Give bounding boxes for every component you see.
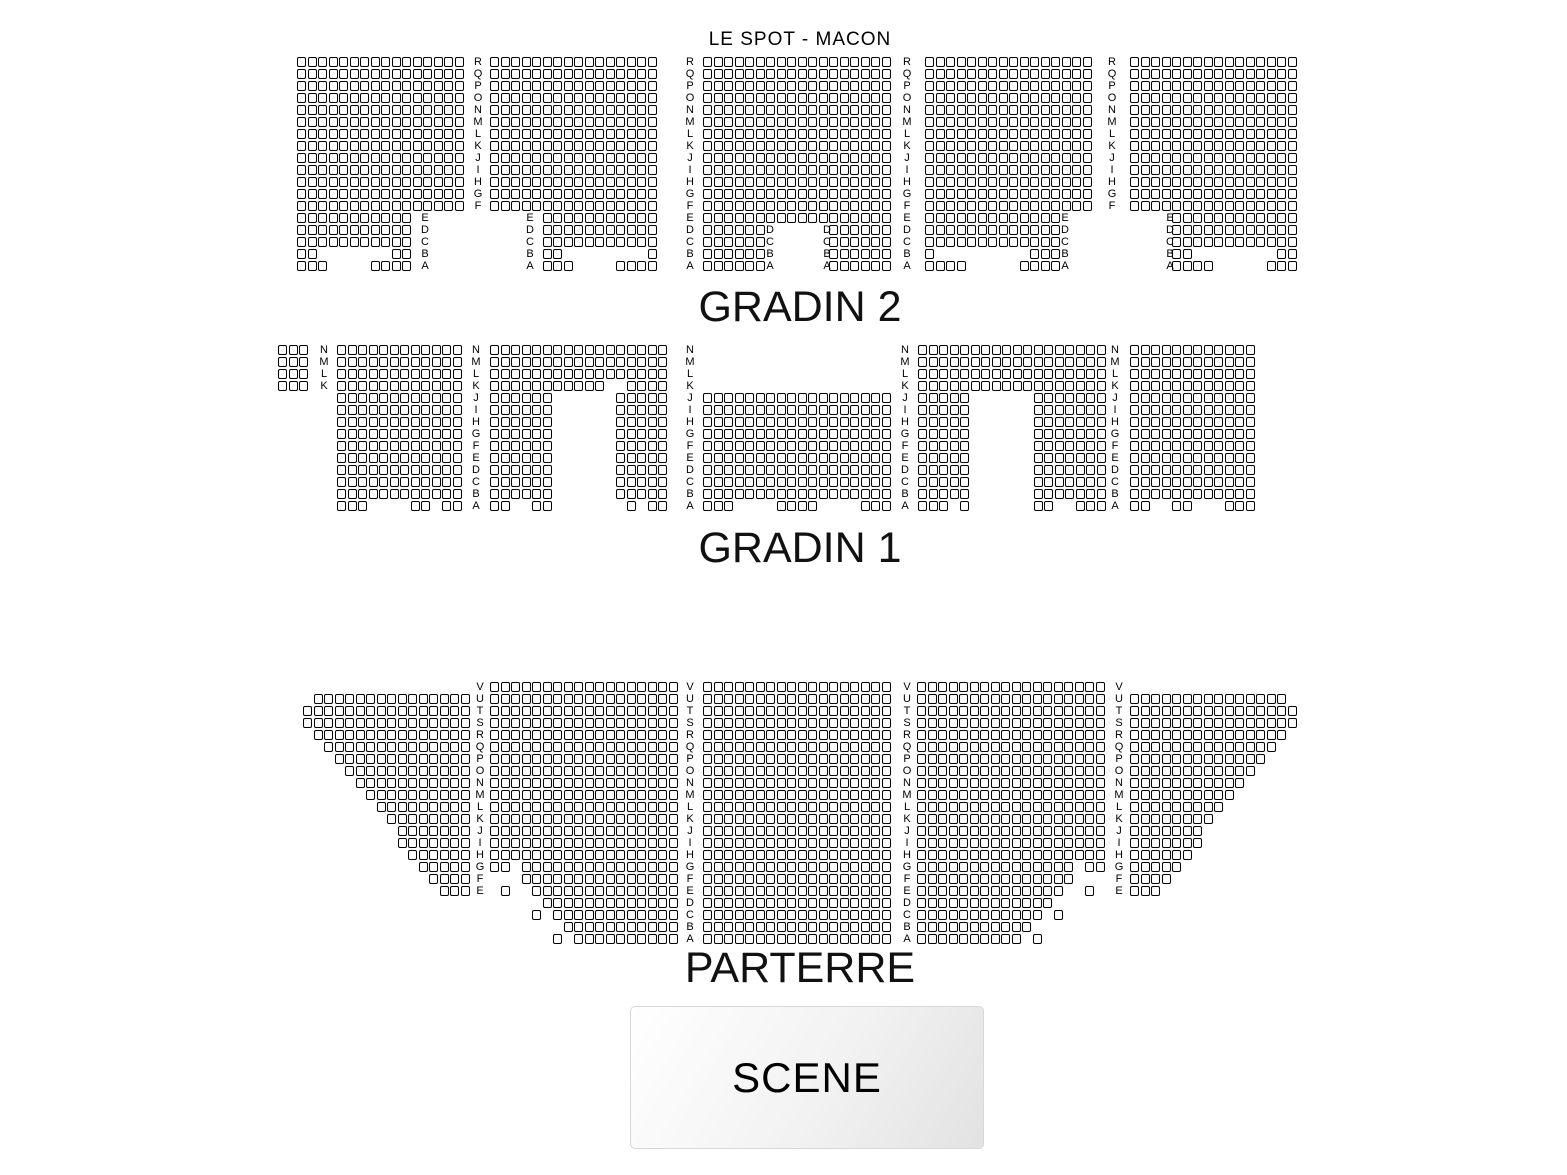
seat[interactable] bbox=[648, 405, 657, 415]
seat[interactable] bbox=[703, 261, 712, 271]
seat[interactable] bbox=[1183, 153, 1192, 163]
seat[interactable] bbox=[616, 69, 625, 79]
seat[interactable] bbox=[918, 465, 927, 475]
seat[interactable] bbox=[358, 441, 367, 451]
seat[interactable] bbox=[808, 93, 817, 103]
seat[interactable] bbox=[960, 381, 969, 391]
seat[interactable] bbox=[350, 93, 359, 103]
seat[interactable] bbox=[381, 129, 390, 139]
seat[interactable] bbox=[390, 489, 399, 499]
seat[interactable] bbox=[991, 766, 1000, 776]
seat[interactable] bbox=[648, 153, 657, 163]
seat[interactable] bbox=[1130, 69, 1139, 79]
seat[interactable] bbox=[991, 778, 1000, 788]
seat[interactable] bbox=[1267, 69, 1276, 79]
seat[interactable] bbox=[585, 790, 594, 800]
seat[interactable] bbox=[392, 237, 401, 247]
seat[interactable] bbox=[337, 381, 346, 391]
seat[interactable] bbox=[1277, 201, 1286, 211]
seat[interactable] bbox=[337, 369, 346, 379]
seat[interactable] bbox=[461, 790, 470, 800]
seat[interactable] bbox=[1214, 369, 1223, 379]
seat[interactable] bbox=[627, 694, 636, 704]
seat[interactable] bbox=[829, 910, 838, 920]
seat[interactable] bbox=[574, 141, 583, 151]
seat[interactable] bbox=[553, 814, 562, 824]
seat[interactable] bbox=[1002, 345, 1011, 355]
seat[interactable] bbox=[703, 742, 712, 752]
seat[interactable] bbox=[1235, 105, 1244, 115]
seat[interactable] bbox=[564, 754, 573, 764]
seat[interactable] bbox=[1096, 718, 1105, 728]
seat[interactable] bbox=[1072, 201, 1081, 211]
seat[interactable] bbox=[553, 117, 562, 127]
seat[interactable] bbox=[936, 93, 945, 103]
seat[interactable] bbox=[808, 105, 817, 115]
seat[interactable] bbox=[442, 393, 451, 403]
seat[interactable] bbox=[308, 177, 317, 187]
seat[interactable] bbox=[648, 730, 657, 740]
seat[interactable] bbox=[724, 69, 733, 79]
seat[interactable] bbox=[490, 201, 499, 211]
seat[interactable] bbox=[543, 117, 552, 127]
seat[interactable] bbox=[703, 874, 712, 884]
seat[interactable] bbox=[840, 117, 849, 127]
seat[interactable] bbox=[745, 69, 754, 79]
seat[interactable] bbox=[735, 105, 744, 115]
seat[interactable] bbox=[434, 201, 443, 211]
seat[interactable] bbox=[1172, 706, 1181, 716]
seat[interactable] bbox=[408, 838, 417, 848]
seat[interactable] bbox=[411, 501, 420, 511]
seat[interactable] bbox=[850, 850, 859, 860]
seat[interactable] bbox=[595, 129, 604, 139]
seat[interactable] bbox=[703, 850, 712, 860]
seat[interactable] bbox=[918, 441, 927, 451]
seat[interactable] bbox=[318, 69, 327, 79]
seat[interactable] bbox=[627, 814, 636, 824]
seat[interactable] bbox=[735, 453, 744, 463]
seat[interactable] bbox=[429, 766, 438, 776]
seat[interactable] bbox=[356, 742, 365, 752]
seat[interactable] bbox=[1041, 189, 1050, 199]
seat[interactable] bbox=[553, 81, 562, 91]
seat[interactable] bbox=[490, 742, 499, 752]
seat[interactable] bbox=[658, 405, 667, 415]
seat[interactable] bbox=[1009, 57, 1018, 67]
seat[interactable] bbox=[829, 405, 838, 415]
seat[interactable] bbox=[967, 237, 976, 247]
seat[interactable] bbox=[308, 201, 317, 211]
seat[interactable] bbox=[543, 261, 552, 271]
seat[interactable] bbox=[627, 213, 636, 223]
seat[interactable] bbox=[959, 934, 968, 944]
seat[interactable] bbox=[1183, 754, 1192, 764]
seat[interactable] bbox=[808, 898, 817, 908]
seat[interactable] bbox=[714, 826, 723, 836]
seat[interactable] bbox=[829, 778, 838, 788]
seat[interactable] bbox=[724, 201, 733, 211]
seat[interactable] bbox=[553, 177, 562, 187]
seat[interactable] bbox=[408, 790, 417, 800]
seat[interactable] bbox=[637, 778, 646, 788]
seat[interactable] bbox=[959, 850, 968, 860]
seat[interactable] bbox=[798, 754, 807, 764]
seat[interactable] bbox=[1030, 177, 1039, 187]
seat[interactable] bbox=[1001, 802, 1010, 812]
seat[interactable] bbox=[766, 730, 775, 740]
seat[interactable] bbox=[1246, 465, 1255, 475]
seat[interactable] bbox=[882, 189, 891, 199]
seat[interactable] bbox=[627, 93, 636, 103]
seat[interactable] bbox=[1225, 381, 1234, 391]
seat[interactable] bbox=[377, 766, 386, 776]
seat[interactable] bbox=[714, 189, 723, 199]
seat[interactable] bbox=[1162, 81, 1171, 91]
seat[interactable] bbox=[1022, 766, 1031, 776]
seat[interactable] bbox=[348, 501, 357, 511]
seat[interactable] bbox=[882, 81, 891, 91]
seat[interactable] bbox=[1151, 345, 1160, 355]
seat[interactable] bbox=[756, 898, 765, 908]
seat[interactable] bbox=[735, 838, 744, 848]
seat[interactable] bbox=[440, 814, 449, 824]
seat[interactable] bbox=[411, 357, 420, 367]
seat[interactable] bbox=[936, 213, 945, 223]
seat[interactable] bbox=[1086, 417, 1095, 427]
seat[interactable] bbox=[819, 862, 828, 872]
seat[interactable] bbox=[777, 766, 786, 776]
seat[interactable] bbox=[861, 766, 870, 776]
seat[interactable] bbox=[522, 429, 531, 439]
seat[interactable] bbox=[1183, 838, 1192, 848]
seat[interactable] bbox=[501, 814, 510, 824]
seat[interactable] bbox=[1277, 93, 1286, 103]
seat[interactable] bbox=[1172, 141, 1181, 151]
seat[interactable] bbox=[798, 117, 807, 127]
seat[interactable] bbox=[745, 249, 754, 259]
seat[interactable] bbox=[1141, 766, 1150, 776]
seat[interactable] bbox=[999, 81, 1008, 91]
seat[interactable] bbox=[360, 93, 369, 103]
seat[interactable] bbox=[606, 369, 615, 379]
seat[interactable] bbox=[918, 357, 927, 367]
seat[interactable] bbox=[735, 706, 744, 716]
seat[interactable] bbox=[991, 694, 1000, 704]
seat[interactable] bbox=[1096, 778, 1105, 788]
seat[interactable] bbox=[978, 81, 987, 91]
seat[interactable] bbox=[627, 141, 636, 151]
seat[interactable] bbox=[1055, 357, 1064, 367]
seat[interactable] bbox=[787, 718, 796, 728]
seat[interactable] bbox=[345, 718, 354, 728]
seat[interactable] bbox=[358, 381, 367, 391]
seat[interactable] bbox=[444, 117, 453, 127]
seat[interactable] bbox=[318, 141, 327, 151]
seat[interactable] bbox=[606, 225, 615, 235]
seat[interactable] bbox=[501, 742, 510, 752]
seat[interactable] bbox=[819, 778, 828, 788]
seat[interactable] bbox=[637, 850, 646, 860]
seat[interactable] bbox=[1151, 694, 1160, 704]
seat[interactable] bbox=[387, 766, 396, 776]
seat[interactable] bbox=[777, 838, 786, 848]
seat[interactable] bbox=[766, 189, 775, 199]
seat[interactable] bbox=[936, 141, 945, 151]
seat[interactable] bbox=[345, 730, 354, 740]
seat[interactable] bbox=[946, 93, 955, 103]
seat[interactable] bbox=[703, 754, 712, 764]
seat[interactable] bbox=[949, 766, 958, 776]
seat[interactable] bbox=[1214, 489, 1223, 499]
seat[interactable] bbox=[1246, 405, 1255, 415]
seat[interactable] bbox=[871, 177, 880, 187]
seat[interactable] bbox=[337, 489, 346, 499]
seat[interactable] bbox=[627, 189, 636, 199]
seat[interactable] bbox=[348, 489, 357, 499]
seat[interactable] bbox=[1030, 189, 1039, 199]
seat[interactable] bbox=[936, 129, 945, 139]
seat[interactable] bbox=[928, 694, 937, 704]
seat[interactable] bbox=[882, 802, 891, 812]
seat[interactable] bbox=[871, 417, 880, 427]
seat[interactable] bbox=[337, 357, 346, 367]
seat[interactable] bbox=[616, 898, 625, 908]
seat[interactable] bbox=[1214, 201, 1223, 211]
seat[interactable] bbox=[1151, 81, 1160, 91]
seat[interactable] bbox=[348, 369, 357, 379]
seat[interactable] bbox=[960, 357, 969, 367]
seat[interactable] bbox=[371, 93, 380, 103]
seat[interactable] bbox=[1141, 93, 1150, 103]
seat[interactable] bbox=[1012, 718, 1021, 728]
seat[interactable] bbox=[1204, 742, 1213, 752]
seat[interactable] bbox=[819, 57, 828, 67]
seat[interactable] bbox=[627, 165, 636, 175]
seat[interactable] bbox=[308, 117, 317, 127]
seat[interactable] bbox=[432, 465, 441, 475]
seat[interactable] bbox=[1246, 489, 1255, 499]
seat[interactable] bbox=[648, 369, 657, 379]
seat[interactable] bbox=[585, 225, 594, 235]
seat[interactable] bbox=[627, 201, 636, 211]
seat[interactable] bbox=[1141, 153, 1150, 163]
seat[interactable] bbox=[861, 261, 870, 271]
seat[interactable] bbox=[724, 910, 733, 920]
seat[interactable] bbox=[574, 790, 583, 800]
seat[interactable] bbox=[1172, 838, 1181, 848]
seat[interactable] bbox=[703, 249, 712, 259]
seat[interactable] bbox=[777, 850, 786, 860]
seat[interactable] bbox=[861, 153, 870, 163]
seat[interactable] bbox=[714, 141, 723, 151]
seat[interactable] bbox=[829, 766, 838, 776]
seat[interactable] bbox=[400, 489, 409, 499]
seat[interactable] bbox=[819, 898, 828, 908]
seat[interactable] bbox=[959, 814, 968, 824]
seat[interactable] bbox=[1009, 153, 1018, 163]
seat[interactable] bbox=[1151, 153, 1160, 163]
seat[interactable] bbox=[490, 393, 499, 403]
seat[interactable] bbox=[398, 730, 407, 740]
seat[interactable] bbox=[819, 453, 828, 463]
seat[interactable] bbox=[928, 886, 937, 896]
seat[interactable] bbox=[423, 201, 432, 211]
seat[interactable] bbox=[511, 165, 520, 175]
seat[interactable] bbox=[1225, 429, 1234, 439]
seat[interactable] bbox=[819, 814, 828, 824]
seat[interactable] bbox=[616, 910, 625, 920]
seat[interactable] bbox=[808, 910, 817, 920]
seat[interactable] bbox=[371, 105, 380, 115]
seat[interactable] bbox=[871, 718, 880, 728]
seat[interactable] bbox=[419, 778, 428, 788]
seat[interactable] bbox=[766, 429, 775, 439]
seat[interactable] bbox=[1030, 261, 1039, 271]
seat[interactable] bbox=[585, 345, 594, 355]
seat[interactable] bbox=[461, 766, 470, 776]
seat[interactable] bbox=[369, 393, 378, 403]
seat[interactable] bbox=[356, 754, 365, 764]
seat[interactable] bbox=[423, 141, 432, 151]
seat[interactable] bbox=[1246, 441, 1255, 451]
seat[interactable] bbox=[756, 57, 765, 67]
seat[interactable] bbox=[1151, 93, 1160, 103]
seat[interactable] bbox=[356, 694, 365, 704]
seat[interactable] bbox=[421, 489, 430, 499]
seat[interactable] bbox=[1072, 129, 1081, 139]
seat[interactable] bbox=[1009, 117, 1018, 127]
seat[interactable] bbox=[522, 489, 531, 499]
seat[interactable] bbox=[917, 850, 926, 860]
seat[interactable] bbox=[358, 501, 367, 511]
seat[interactable] bbox=[350, 117, 359, 127]
seat[interactable] bbox=[627, 357, 636, 367]
seat[interactable] bbox=[1151, 57, 1160, 67]
seat[interactable] bbox=[1151, 441, 1160, 451]
seat[interactable] bbox=[703, 706, 712, 716]
seat[interactable] bbox=[745, 886, 754, 896]
seat[interactable] bbox=[819, 766, 828, 776]
seat[interactable] bbox=[1020, 129, 1029, 139]
seat[interactable] bbox=[861, 237, 870, 247]
seat[interactable] bbox=[928, 898, 937, 908]
seat[interactable] bbox=[297, 261, 306, 271]
seat[interactable] bbox=[970, 778, 979, 788]
seat[interactable] bbox=[724, 93, 733, 103]
seat[interactable] bbox=[450, 862, 459, 872]
seat[interactable] bbox=[627, 682, 636, 692]
seat[interactable] bbox=[1204, 381, 1213, 391]
seat[interactable] bbox=[1214, 105, 1223, 115]
seat[interactable] bbox=[1022, 694, 1031, 704]
seat[interactable] bbox=[808, 862, 817, 872]
seat[interactable] bbox=[1183, 826, 1192, 836]
seat[interactable] bbox=[1288, 117, 1297, 127]
seat[interactable] bbox=[724, 117, 733, 127]
seat[interactable] bbox=[490, 69, 499, 79]
seat[interactable] bbox=[1183, 718, 1192, 728]
seat[interactable] bbox=[1051, 93, 1060, 103]
seat[interactable] bbox=[616, 790, 625, 800]
seat[interactable] bbox=[1204, 489, 1213, 499]
seat[interactable] bbox=[1075, 730, 1084, 740]
seat[interactable] bbox=[917, 802, 926, 812]
seat[interactable] bbox=[967, 129, 976, 139]
seat[interactable] bbox=[1193, 429, 1202, 439]
seat[interactable] bbox=[299, 381, 308, 391]
seat[interactable] bbox=[450, 814, 459, 824]
seat[interactable] bbox=[766, 706, 775, 716]
seat[interactable] bbox=[766, 778, 775, 788]
seat[interactable] bbox=[1051, 165, 1060, 175]
seat[interactable] bbox=[808, 718, 817, 728]
seat[interactable] bbox=[1141, 357, 1150, 367]
seat[interactable] bbox=[861, 706, 870, 716]
seat[interactable] bbox=[1162, 766, 1171, 776]
seat[interactable] bbox=[371, 117, 380, 127]
seat[interactable] bbox=[1172, 117, 1181, 127]
seat[interactable] bbox=[861, 465, 870, 475]
seat[interactable] bbox=[501, 465, 510, 475]
seat[interactable] bbox=[1267, 718, 1276, 728]
seat[interactable] bbox=[861, 501, 870, 511]
seat[interactable] bbox=[501, 886, 510, 896]
seat[interactable] bbox=[669, 706, 678, 716]
seat[interactable] bbox=[756, 694, 765, 704]
seat[interactable] bbox=[936, 189, 945, 199]
seat[interactable] bbox=[648, 225, 657, 235]
seat[interactable] bbox=[819, 477, 828, 487]
seat[interactable] bbox=[1246, 153, 1255, 163]
seat[interactable] bbox=[442, 501, 451, 511]
seat[interactable] bbox=[595, 922, 604, 932]
seat[interactable] bbox=[564, 177, 573, 187]
seat[interactable] bbox=[928, 718, 937, 728]
seat[interactable] bbox=[1193, 93, 1202, 103]
seat[interactable] bbox=[756, 934, 765, 944]
seat[interactable] bbox=[819, 850, 828, 860]
seat[interactable] bbox=[1162, 117, 1171, 127]
seat[interactable] bbox=[1064, 682, 1073, 692]
seat[interactable] bbox=[787, 189, 796, 199]
seat[interactable] bbox=[917, 898, 926, 908]
seat[interactable] bbox=[1246, 345, 1255, 355]
seat[interactable] bbox=[1075, 838, 1084, 848]
seat[interactable] bbox=[490, 790, 499, 800]
seat[interactable] bbox=[1030, 201, 1039, 211]
seat[interactable] bbox=[724, 718, 733, 728]
seat[interactable] bbox=[960, 393, 969, 403]
seat[interactable] bbox=[1193, 369, 1202, 379]
seat[interactable] bbox=[1277, 69, 1286, 79]
seat[interactable] bbox=[950, 381, 959, 391]
seat[interactable] bbox=[461, 826, 470, 836]
seat[interactable] bbox=[423, 69, 432, 79]
seat[interactable] bbox=[1225, 393, 1234, 403]
seat[interactable] bbox=[574, 718, 583, 728]
seat[interactable] bbox=[339, 105, 348, 115]
seat[interactable] bbox=[840, 718, 849, 728]
seat[interactable] bbox=[787, 934, 796, 944]
seat[interactable] bbox=[1151, 862, 1160, 872]
seat[interactable] bbox=[350, 165, 359, 175]
seat[interactable] bbox=[606, 826, 615, 836]
seat[interactable] bbox=[917, 778, 926, 788]
seat[interactable] bbox=[1277, 153, 1286, 163]
seat[interactable] bbox=[798, 441, 807, 451]
seat[interactable] bbox=[1034, 465, 1043, 475]
